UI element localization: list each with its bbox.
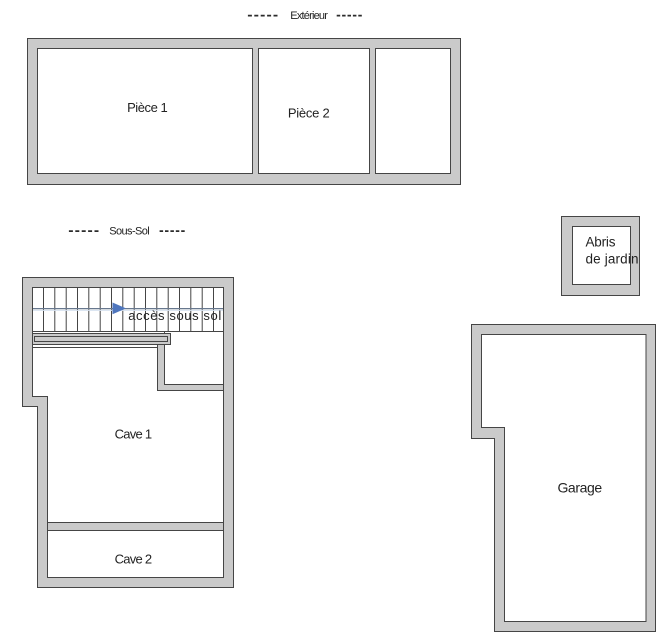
- svg-text:Cave 2: Cave 2: [115, 551, 152, 566]
- svg-text:Sous-Sol: Sous-Sol: [109, 226, 149, 238]
- svg-text:Extérieur: Extérieur: [290, 10, 328, 22]
- svg-text:Pièce 1: Pièce 1: [127, 100, 167, 115]
- svg-text:Abris: Abris: [586, 234, 616, 249]
- svg-text:de jardin: de jardin: [586, 252, 639, 267]
- svg-text:Cave 1: Cave 1: [115, 426, 152, 441]
- svg-text:Garage: Garage: [557, 479, 602, 495]
- svg-text:accès sous sol: accès sous sol: [128, 308, 222, 323]
- svg-text:Pièce 2: Pièce 2: [288, 106, 330, 121]
